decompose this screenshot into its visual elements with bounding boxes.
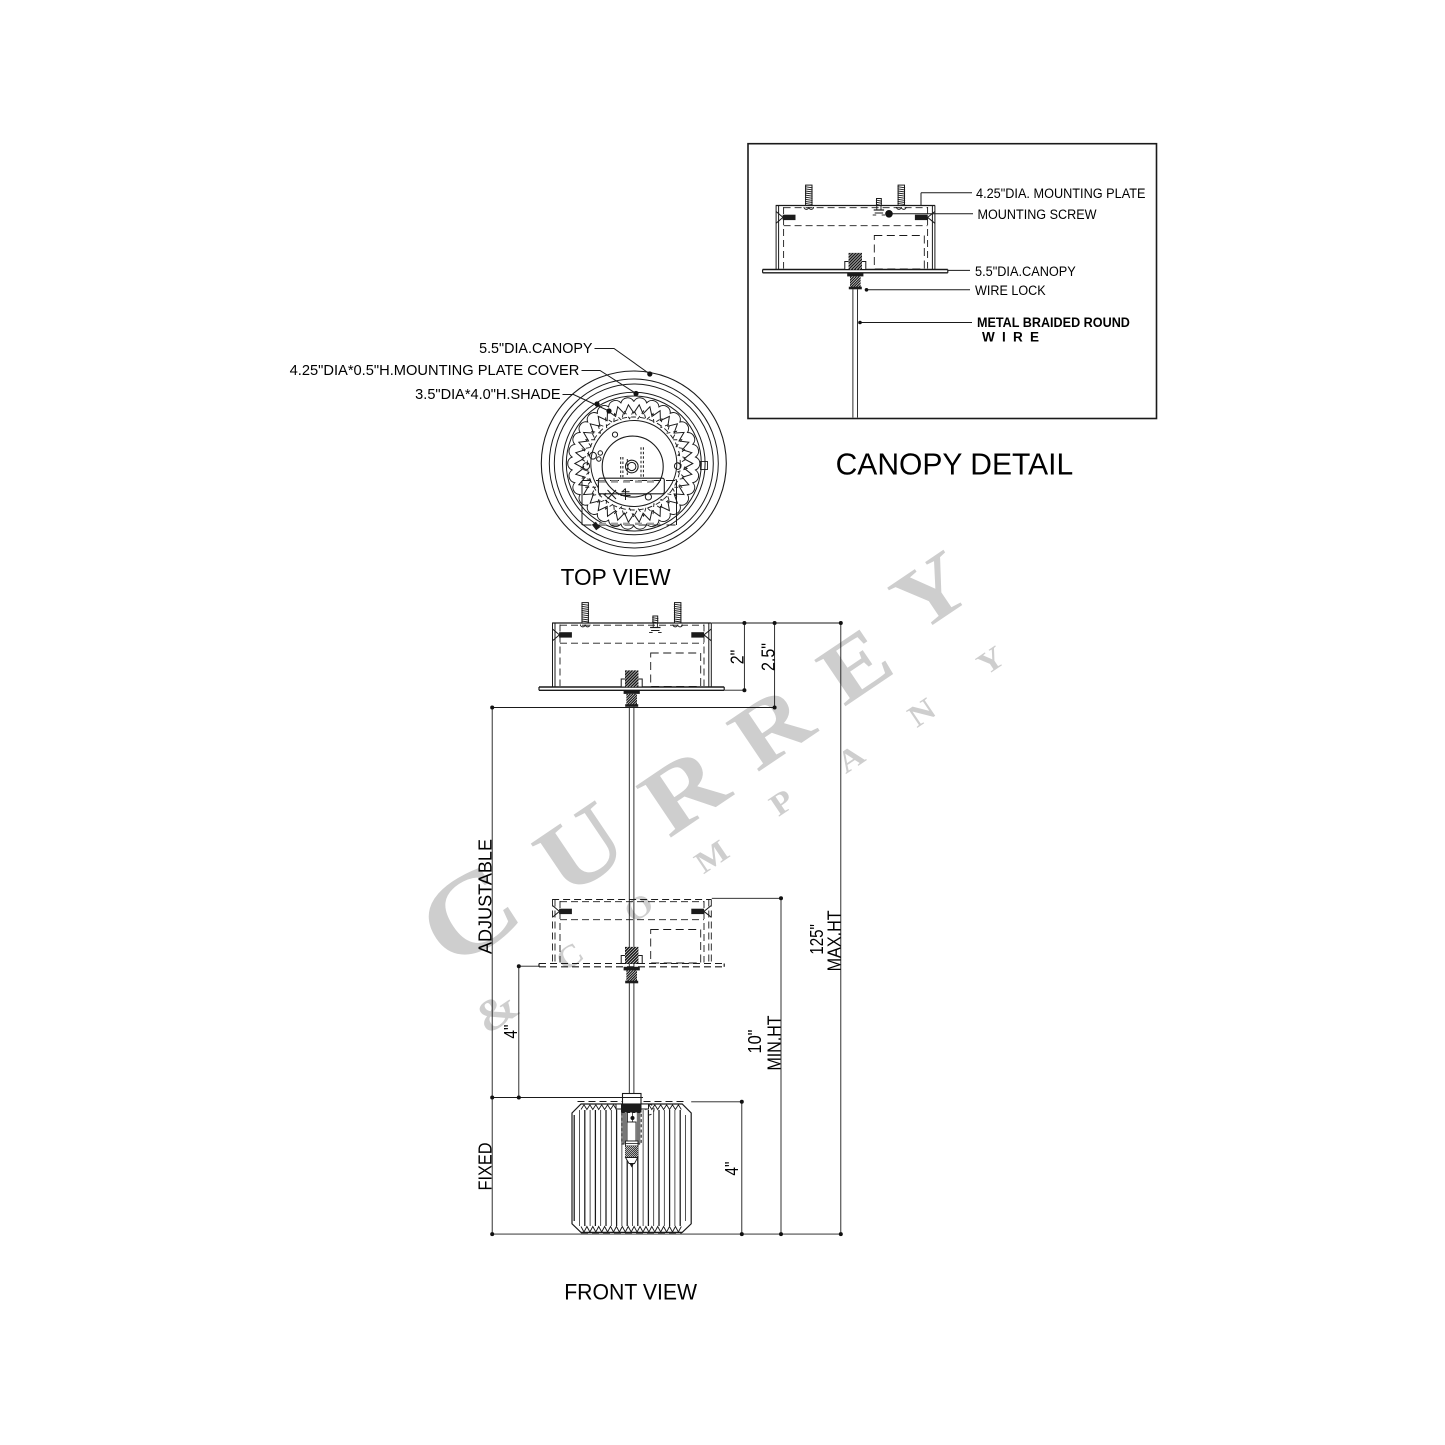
svg-text:4.25"DIA. MOUNTING PLATE: 4.25"DIA. MOUNTING PLATE	[976, 186, 1146, 201]
svg-text:5.5"DIA.CANOPY: 5.5"DIA.CANOPY	[479, 341, 593, 357]
svg-text:METAL BRAIDED ROUND: METAL BRAIDED ROUND	[977, 315, 1130, 330]
svg-text:FIXED: FIXED	[476, 1143, 496, 1191]
svg-text:4": 4"	[501, 1025, 521, 1039]
svg-text:TOP VIEW: TOP VIEW	[561, 564, 671, 590]
svg-text:MIN.HT: MIN.HT	[765, 1016, 785, 1071]
svg-text:2.5": 2.5"	[758, 643, 778, 671]
svg-text:2": 2"	[728, 650, 748, 665]
svg-text:MAX.HT: MAX.HT	[824, 910, 844, 971]
svg-text:5.5"DIA.CANOPY: 5.5"DIA.CANOPY	[975, 264, 1076, 279]
svg-text:ADJUSTABLE: ADJUSTABLE	[476, 839, 496, 954]
svg-text:4": 4"	[722, 1162, 742, 1176]
svg-text:3.5"DIA*4.0"H.SHADE: 3.5"DIA*4.0"H.SHADE	[415, 387, 561, 403]
svg-text:CANOPY DETAIL: CANOPY DETAIL	[836, 448, 1074, 482]
svg-text:10": 10"	[745, 1030, 765, 1054]
svg-text:FRONT VIEW: FRONT VIEW	[564, 1280, 697, 1305]
svg-text:WIRE LOCK: WIRE LOCK	[975, 283, 1046, 298]
svg-text:MOUNTING SCREW: MOUNTING SCREW	[978, 207, 1097, 222]
svg-text:4.25"DIA*0.5"H.MOUNTING PLATE: 4.25"DIA*0.5"H.MOUNTING PLATE COVER	[290, 363, 580, 379]
